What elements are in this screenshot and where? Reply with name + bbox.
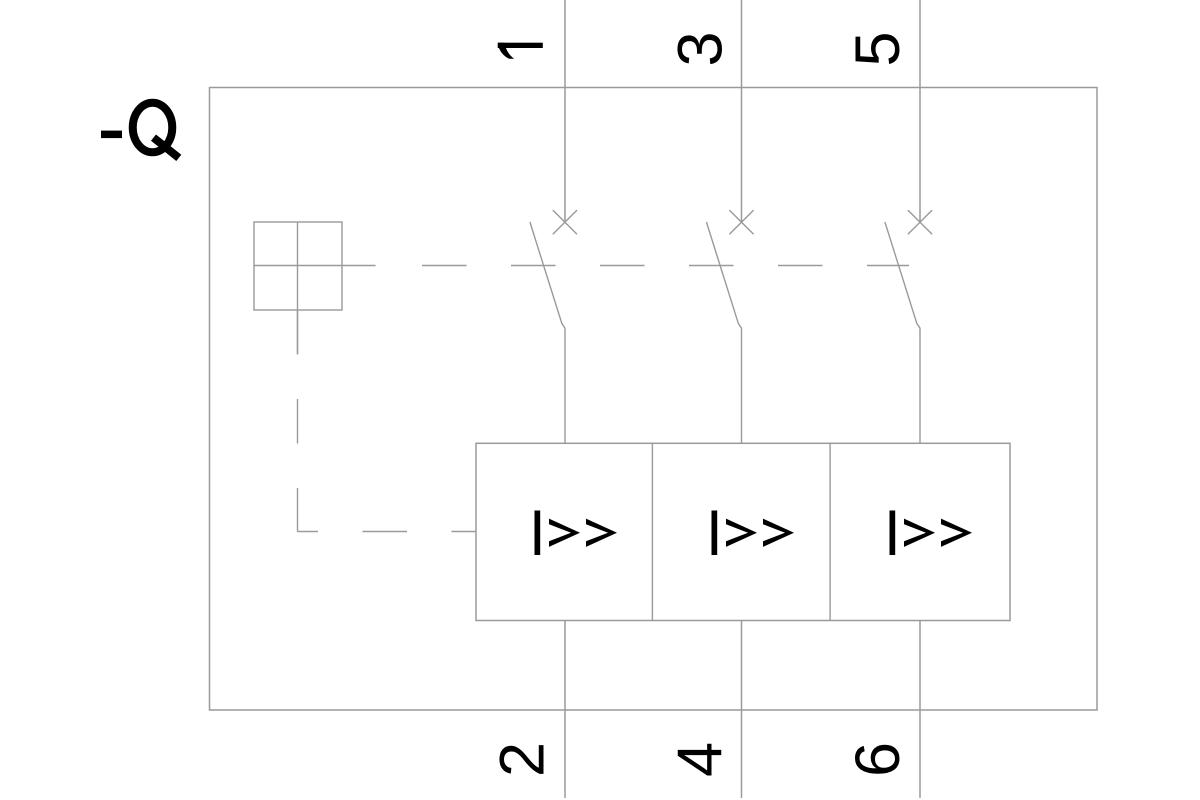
svg-text:4: 4 [666,742,736,777]
svg-text:2: 2 [488,742,558,777]
svg-text:5: 5 [843,31,913,66]
svg-text:3: 3 [666,31,736,66]
svg-text:6: 6 [843,742,913,777]
